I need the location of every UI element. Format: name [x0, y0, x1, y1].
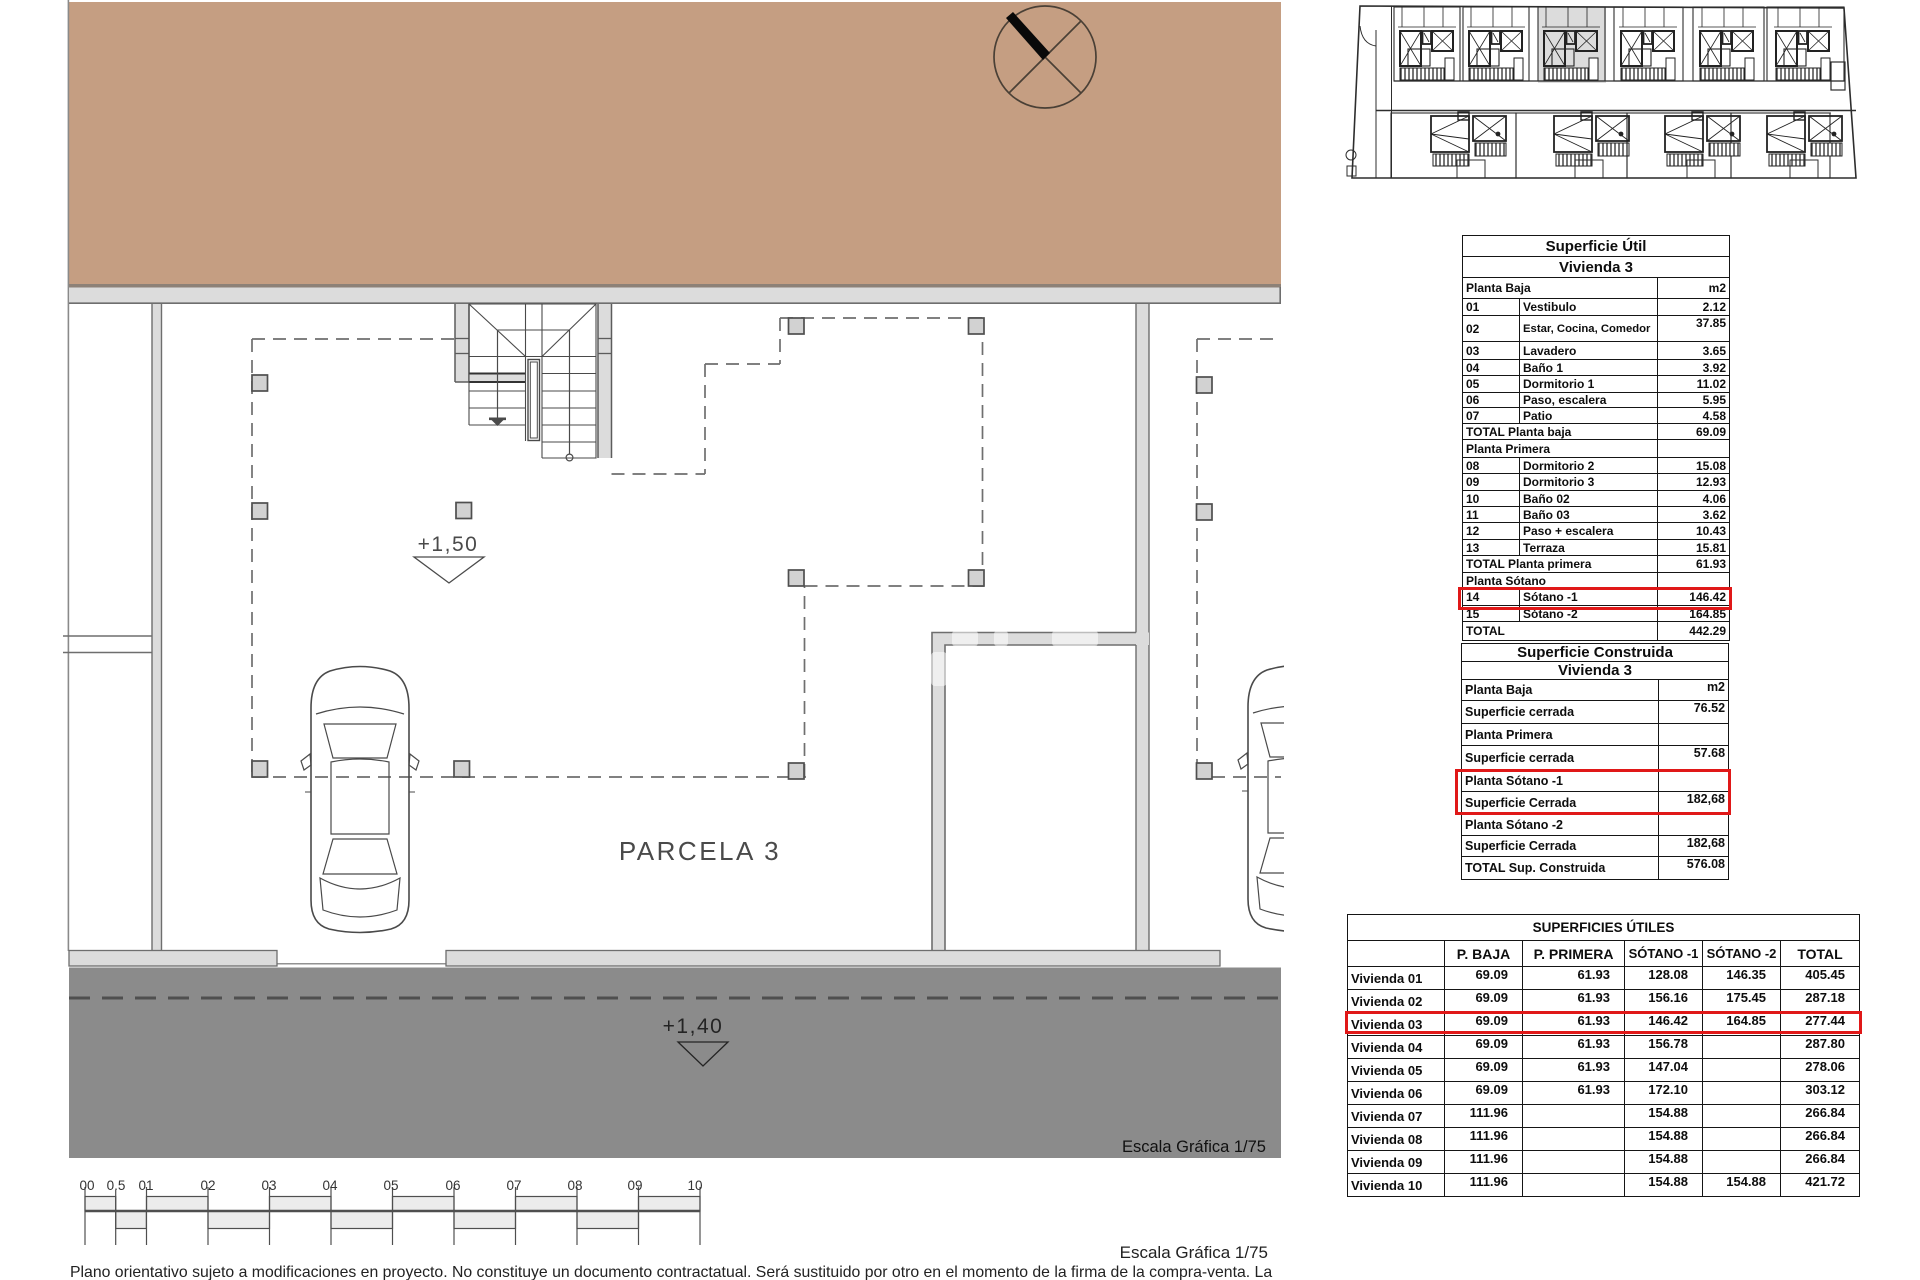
svg-text:PARCELA 3: PARCELA 3 [619, 836, 781, 866]
svg-text:04: 04 [322, 1178, 338, 1193]
svg-text:08: 08 [567, 1178, 582, 1193]
svg-text:02: 02 [200, 1178, 215, 1193]
svg-text:Escala Gráfica 1/75: Escala Gráfica 1/75 [1120, 1243, 1268, 1262]
svg-text:03: 03 [261, 1178, 276, 1193]
svg-text:07: 07 [506, 1178, 521, 1193]
svg-text:00: 00 [79, 1178, 94, 1193]
svg-text:+1,40: +1,40 [663, 1015, 724, 1038]
svg-text:0.5: 0.5 [107, 1178, 126, 1193]
svg-text:05: 05 [383, 1178, 398, 1193]
svg-text:10: 10 [687, 1178, 702, 1193]
svg-text:01: 01 [138, 1178, 153, 1193]
svg-text:06: 06 [445, 1178, 460, 1193]
svg-text:Escala Gráfica 1/75: Escala Gráfica 1/75 [1122, 1138, 1266, 1156]
svg-text:09: 09 [627, 1178, 642, 1193]
svg-text:Plano orientativo sujeto a mod: Plano orientativo sujeto a modificacione… [70, 1264, 1272, 1280]
svg-text:+1,50: +1,50 [418, 533, 479, 556]
